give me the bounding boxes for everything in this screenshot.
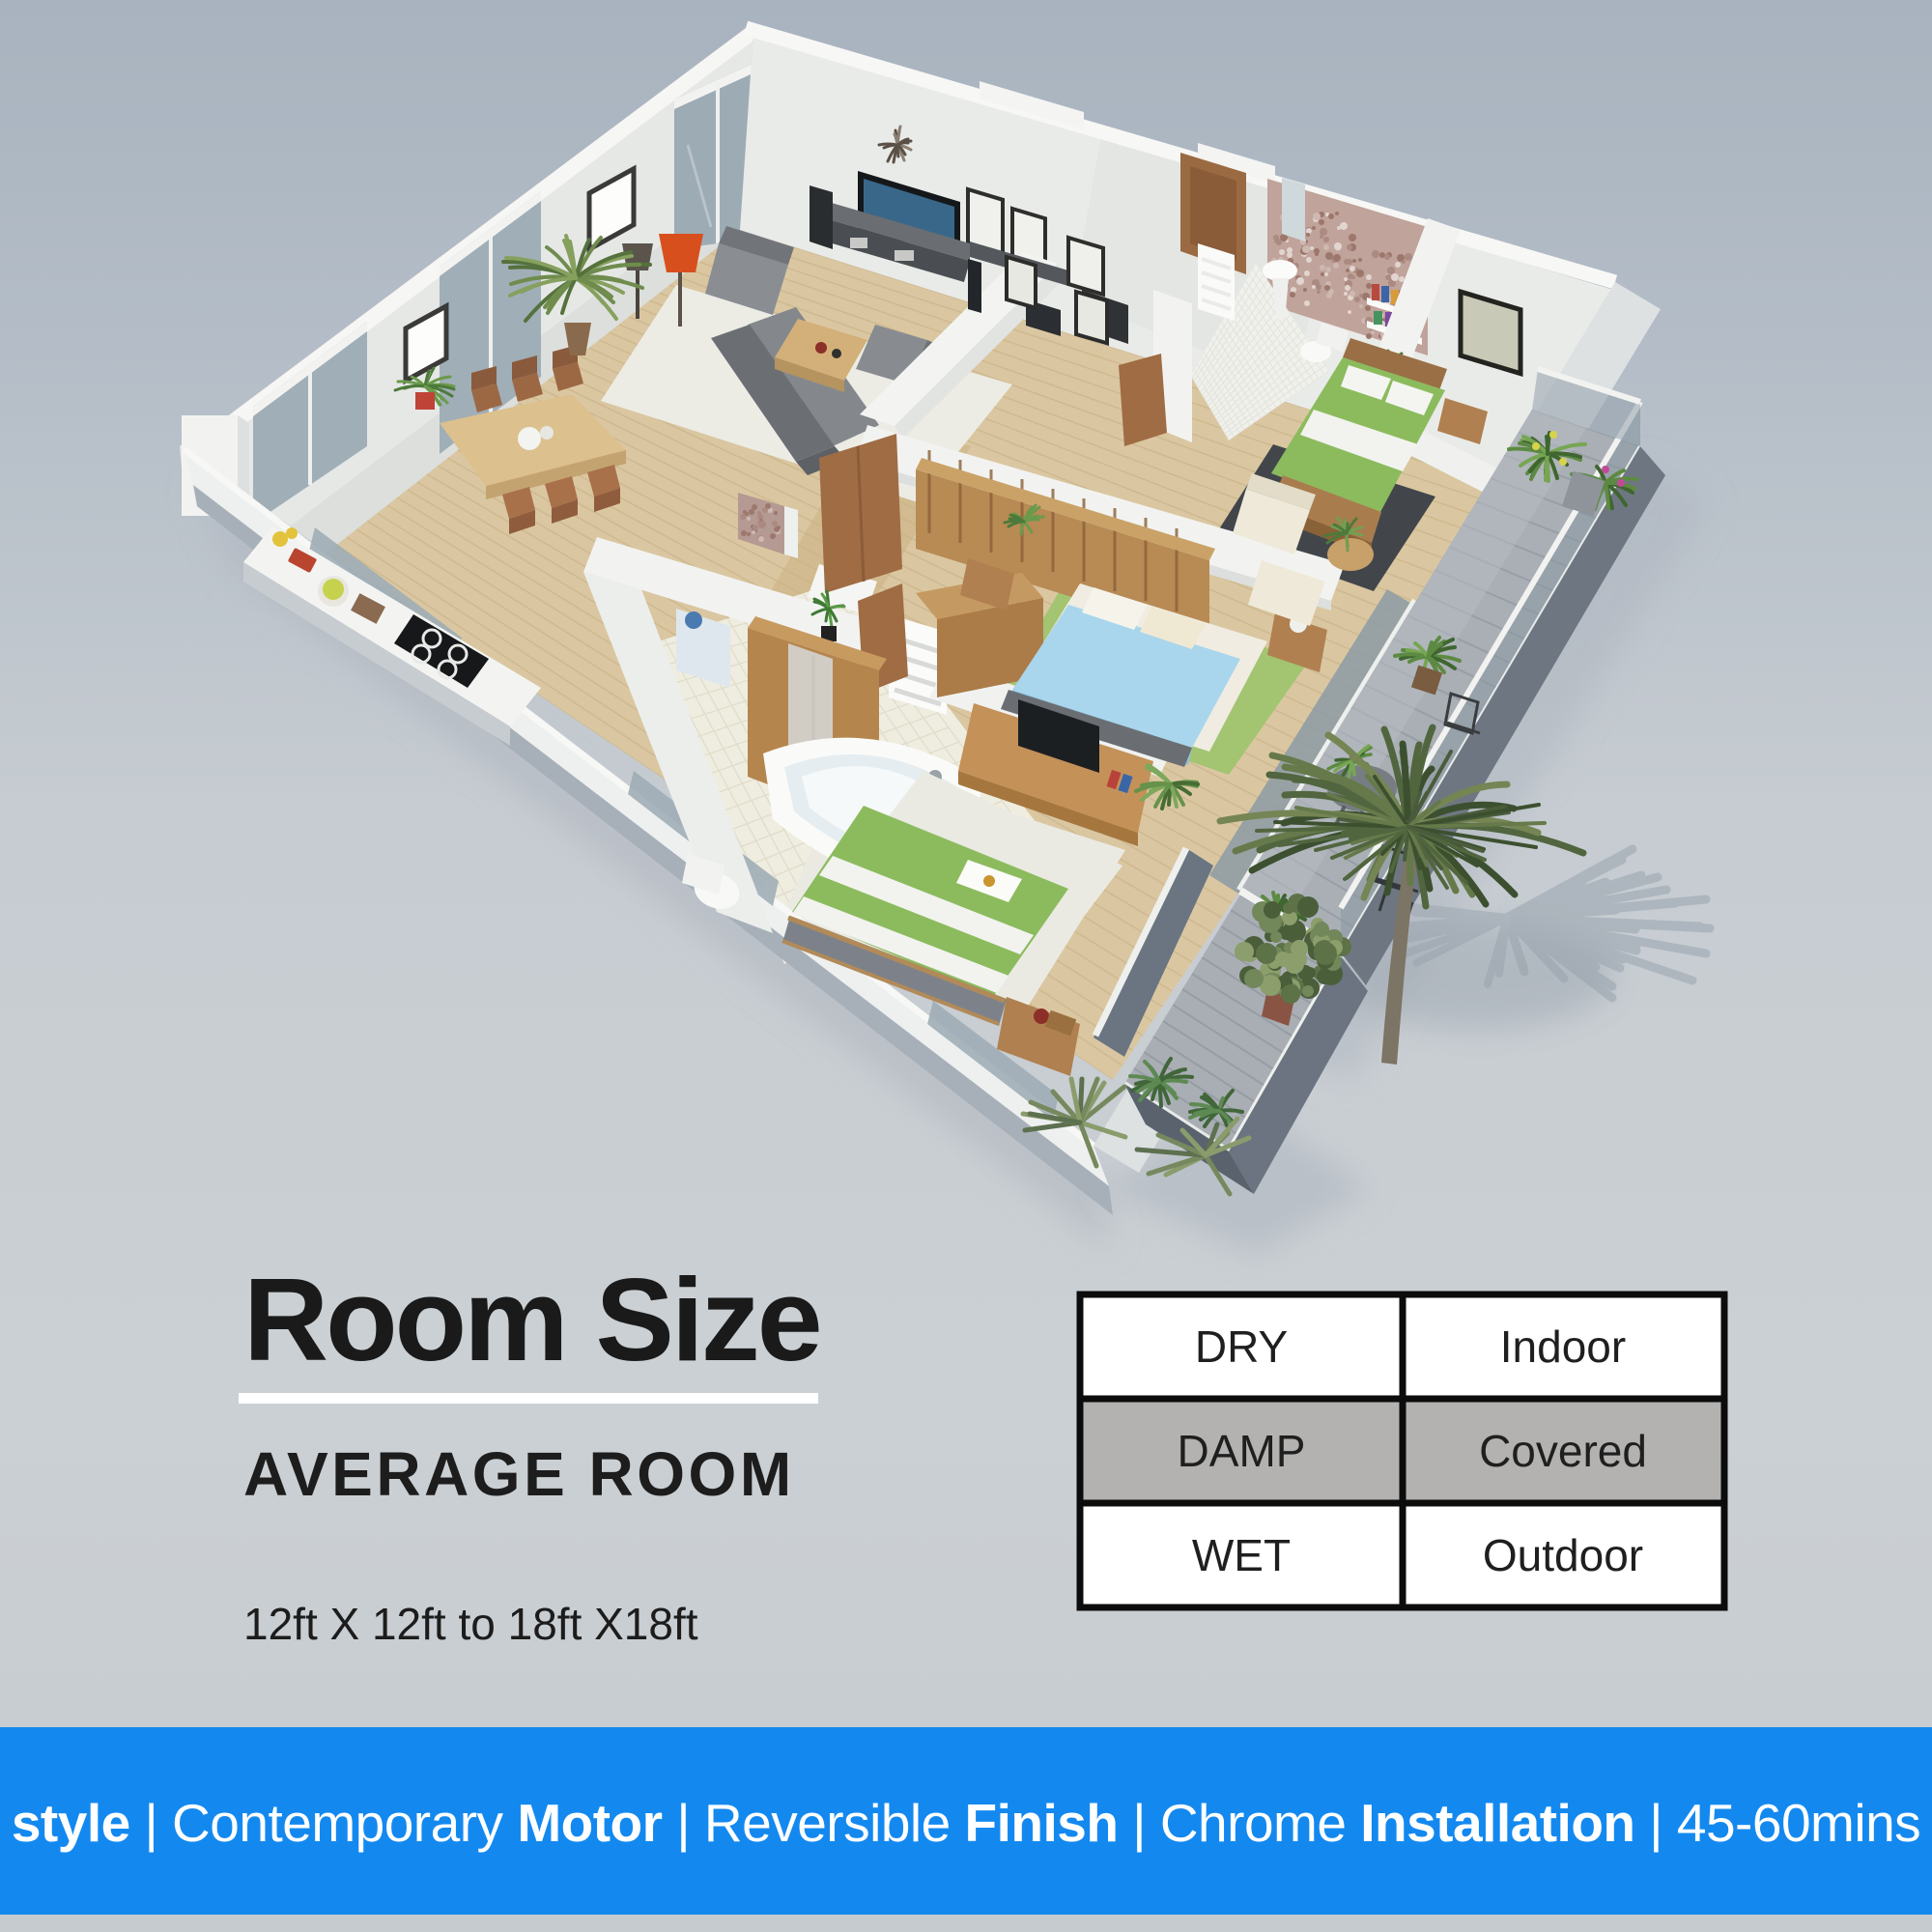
svg-text:AVERAGE ROOM: AVERAGE ROOM (243, 1439, 795, 1509)
svg-text:DAMP: DAMP (1178, 1426, 1306, 1476)
svg-text:12ft X 12ft to 18ft X18ft: 12ft X 12ft to 18ft X18ft (243, 1599, 698, 1649)
svg-text:WET: WET (1192, 1530, 1291, 1580)
svg-text:DRY: DRY (1195, 1321, 1288, 1372)
svg-text:Outdoor: Outdoor (1483, 1530, 1643, 1580)
svg-text:Covered: Covered (1479, 1426, 1647, 1476)
svg-text:style | Contemporary Motor | R: style | Contemporary Motor | Reversible … (12, 1793, 1920, 1853)
svg-text:Room Size: Room Size (243, 1254, 820, 1385)
svg-text:Indoor: Indoor (1500, 1321, 1626, 1372)
